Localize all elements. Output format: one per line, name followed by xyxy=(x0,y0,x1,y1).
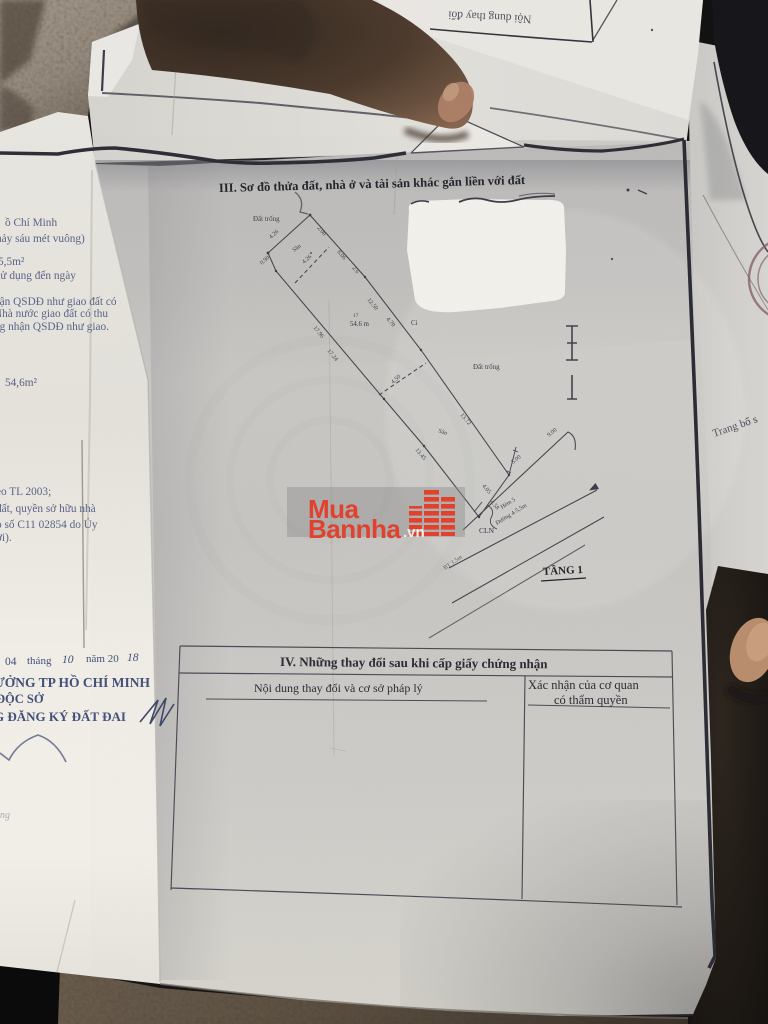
svg-text:5,5m²: 5,5m² xyxy=(0,256,25,268)
svg-text:ồ Chí Minh: ồ Chí Minh xyxy=(5,217,57,229)
svg-text:ĐỘC SỞ: ĐỘC SỞ xyxy=(0,692,44,706)
svg-text:sử dụng đến ngày: sử dụng đến ngày xyxy=(0,270,76,282)
svg-text:54,6m²: 54,6m² xyxy=(5,377,38,389)
svg-text:đất, quyền sở hữu nhà: đất, quyền sở hữu nhà xyxy=(0,503,96,515)
svg-text:ơi).: ơi). xyxy=(0,532,12,544)
svg-text:o số C11 02854 do Ủy: o số C11 02854 do Ủy xyxy=(0,519,98,531)
svg-text:tháng: tháng xyxy=(27,655,52,667)
svg-text:hảy sáu mét vuông): hảy sáu mét vuông) xyxy=(0,233,85,245)
svg-text:04: 04 xyxy=(5,656,17,668)
svg-text:eo TL 2003;: eo TL 2003; xyxy=(0,486,51,498)
svg-text:10: 10 xyxy=(62,654,74,666)
svg-text:ng: ng xyxy=(0,810,10,821)
